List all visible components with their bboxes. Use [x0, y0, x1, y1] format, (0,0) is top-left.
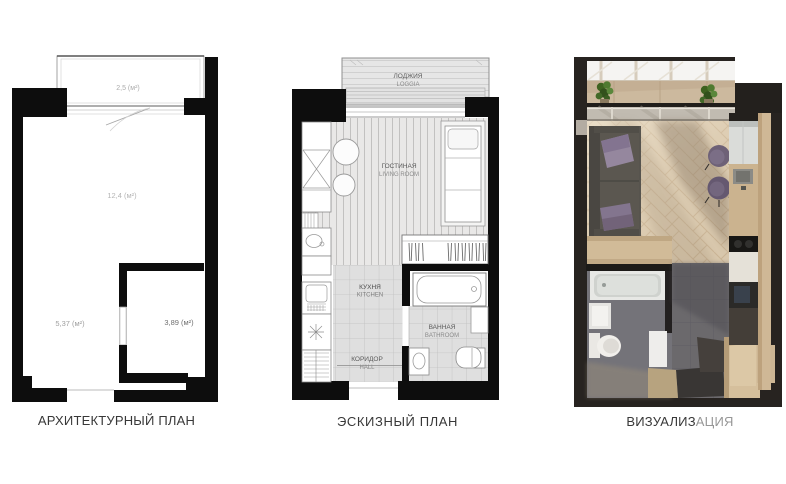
svg-text:ЛОДЖИЯ: ЛОДЖИЯ — [394, 73, 423, 80]
svg-text:ВИЗУАЛИЗАЦИЯ: ВИЗУАЛИЗАЦИЯ — [626, 414, 733, 429]
svg-text:3,89 (м²): 3,89 (м²) — [164, 318, 194, 327]
svg-text:LOGGIA: LOGGIA — [396, 82, 419, 88]
svg-text:12,4 (м²): 12,4 (м²) — [107, 191, 137, 200]
svg-text:КОРИДОР: КОРИДОР — [351, 356, 383, 363]
svg-text:HALL: HALL — [359, 365, 375, 371]
svg-text:ВАННАЯ: ВАННАЯ — [429, 324, 456, 331]
svg-text:LIVING ROOM: LIVING ROOM — [379, 172, 419, 178]
svg-text:BATHROOM: BATHROOM — [425, 333, 459, 339]
svg-text:КУХНЯ: КУХНЯ — [359, 284, 381, 291]
svg-text:5,37 (м²): 5,37 (м²) — [55, 319, 85, 328]
svg-text:KITCHEN: KITCHEN — [357, 293, 383, 299]
svg-text:АРХИТЕКТУРНЫЙ ПЛАН: АРХИТЕКТУРНЫЙ ПЛАН — [38, 413, 195, 428]
svg-text:2,5 (м²): 2,5 (м²) — [116, 85, 139, 92]
svg-text:ГОСТИНАЯ: ГОСТИНАЯ — [381, 163, 416, 170]
svg-text:ЭСКИЗНЫЙ ПЛАН: ЭСКИЗНЫЙ ПЛАН — [337, 414, 458, 429]
